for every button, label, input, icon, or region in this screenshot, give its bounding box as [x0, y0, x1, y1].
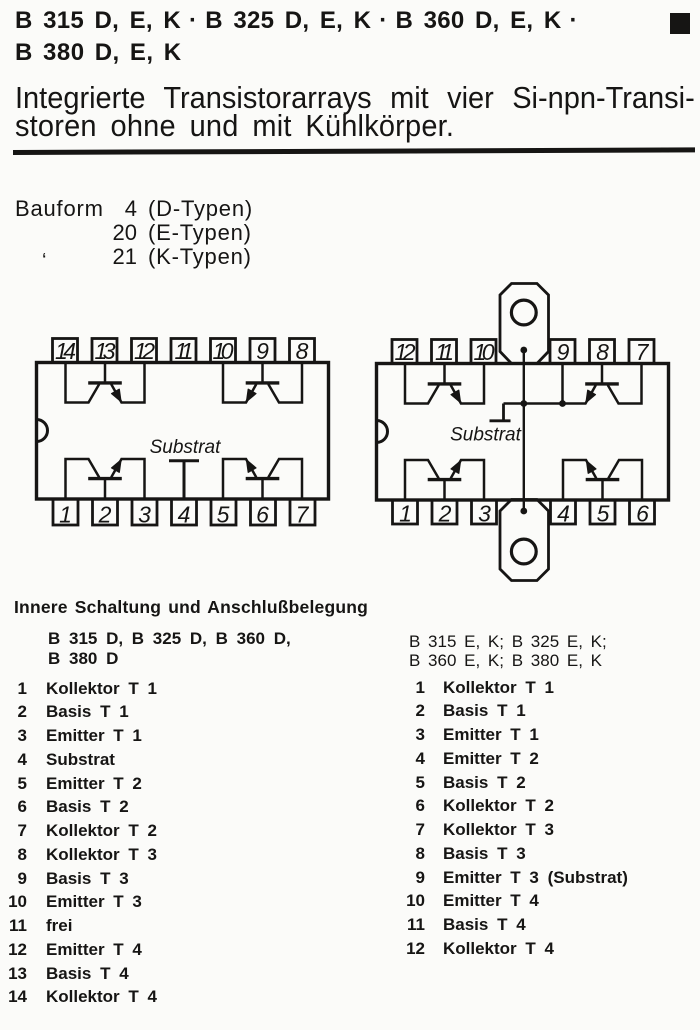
- svg-text:Substrat: Substrat: [450, 425, 521, 446]
- svg-text:3: 3: [138, 502, 151, 528]
- svg-text:6: 6: [636, 501, 649, 527]
- svg-text:9: 9: [256, 338, 269, 364]
- svg-text:7: 7: [636, 339, 650, 365]
- svg-text:6: 6: [256, 502, 269, 528]
- svg-text:10: 10: [213, 338, 234, 364]
- svg-text:Substrat: Substrat: [150, 437, 221, 458]
- svg-text:8: 8: [296, 338, 309, 364]
- svg-text:5: 5: [597, 501, 610, 527]
- svg-text:8: 8: [596, 339, 609, 365]
- svg-text:1: 1: [59, 502, 72, 528]
- svg-text:11: 11: [435, 339, 454, 365]
- svg-text:2: 2: [438, 501, 452, 527]
- svg-text:12: 12: [395, 339, 416, 365]
- svg-text:11: 11: [175, 338, 194, 364]
- svg-text:7: 7: [296, 502, 310, 528]
- svg-text:9: 9: [557, 339, 570, 365]
- svg-text:4: 4: [557, 501, 570, 527]
- svg-text:13: 13: [95, 338, 116, 364]
- svg-text:5: 5: [217, 502, 230, 528]
- svg-text:14: 14: [55, 338, 76, 364]
- svg-text:1: 1: [399, 501, 412, 527]
- svg-text:3: 3: [478, 501, 491, 527]
- svg-text:10: 10: [474, 339, 495, 365]
- svg-text:12: 12: [134, 338, 155, 364]
- svg-text:4: 4: [178, 502, 191, 528]
- svg-text:2: 2: [98, 502, 112, 528]
